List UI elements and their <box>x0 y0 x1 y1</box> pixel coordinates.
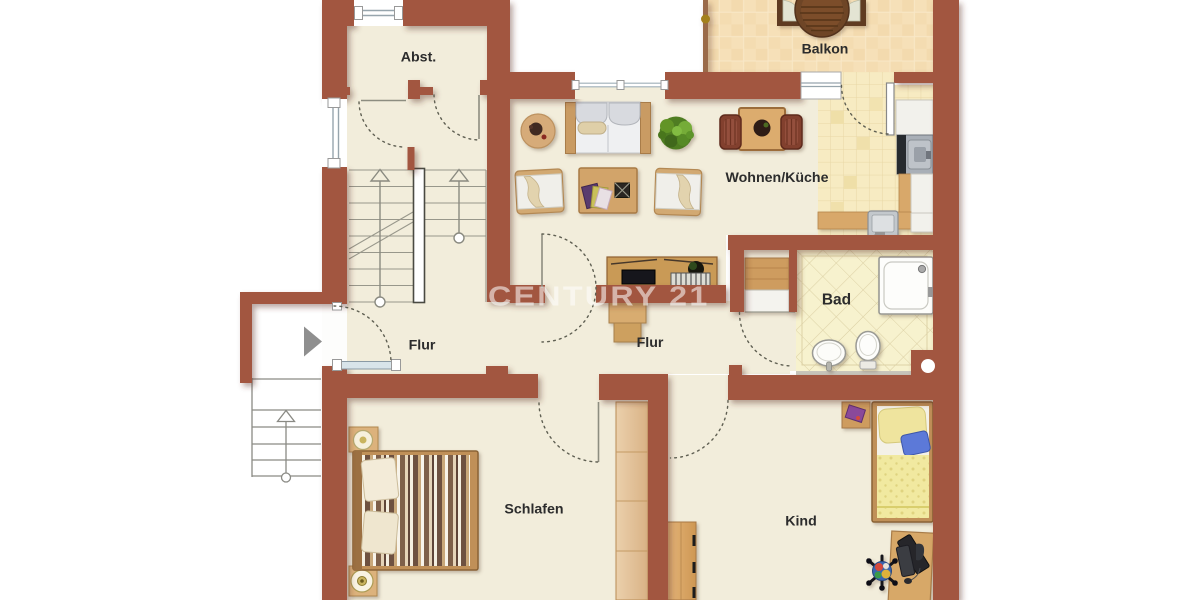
svg-text:Wohnen/Küche: Wohnen/Küche <box>726 170 829 186</box>
svg-text:Balkon: Balkon <box>802 41 849 57</box>
svg-text:Flur: Flur <box>637 335 664 351</box>
svg-text:Kind: Kind <box>785 514 817 530</box>
svg-text:Abst.: Abst. <box>401 50 436 66</box>
svg-text:Flur: Flur <box>409 338 436 354</box>
svg-text:Schlafen: Schlafen <box>504 502 563 518</box>
svg-text:CENTURY 21: CENTURY 21 <box>488 281 710 312</box>
svg-text:Bad: Bad <box>822 292 851 309</box>
